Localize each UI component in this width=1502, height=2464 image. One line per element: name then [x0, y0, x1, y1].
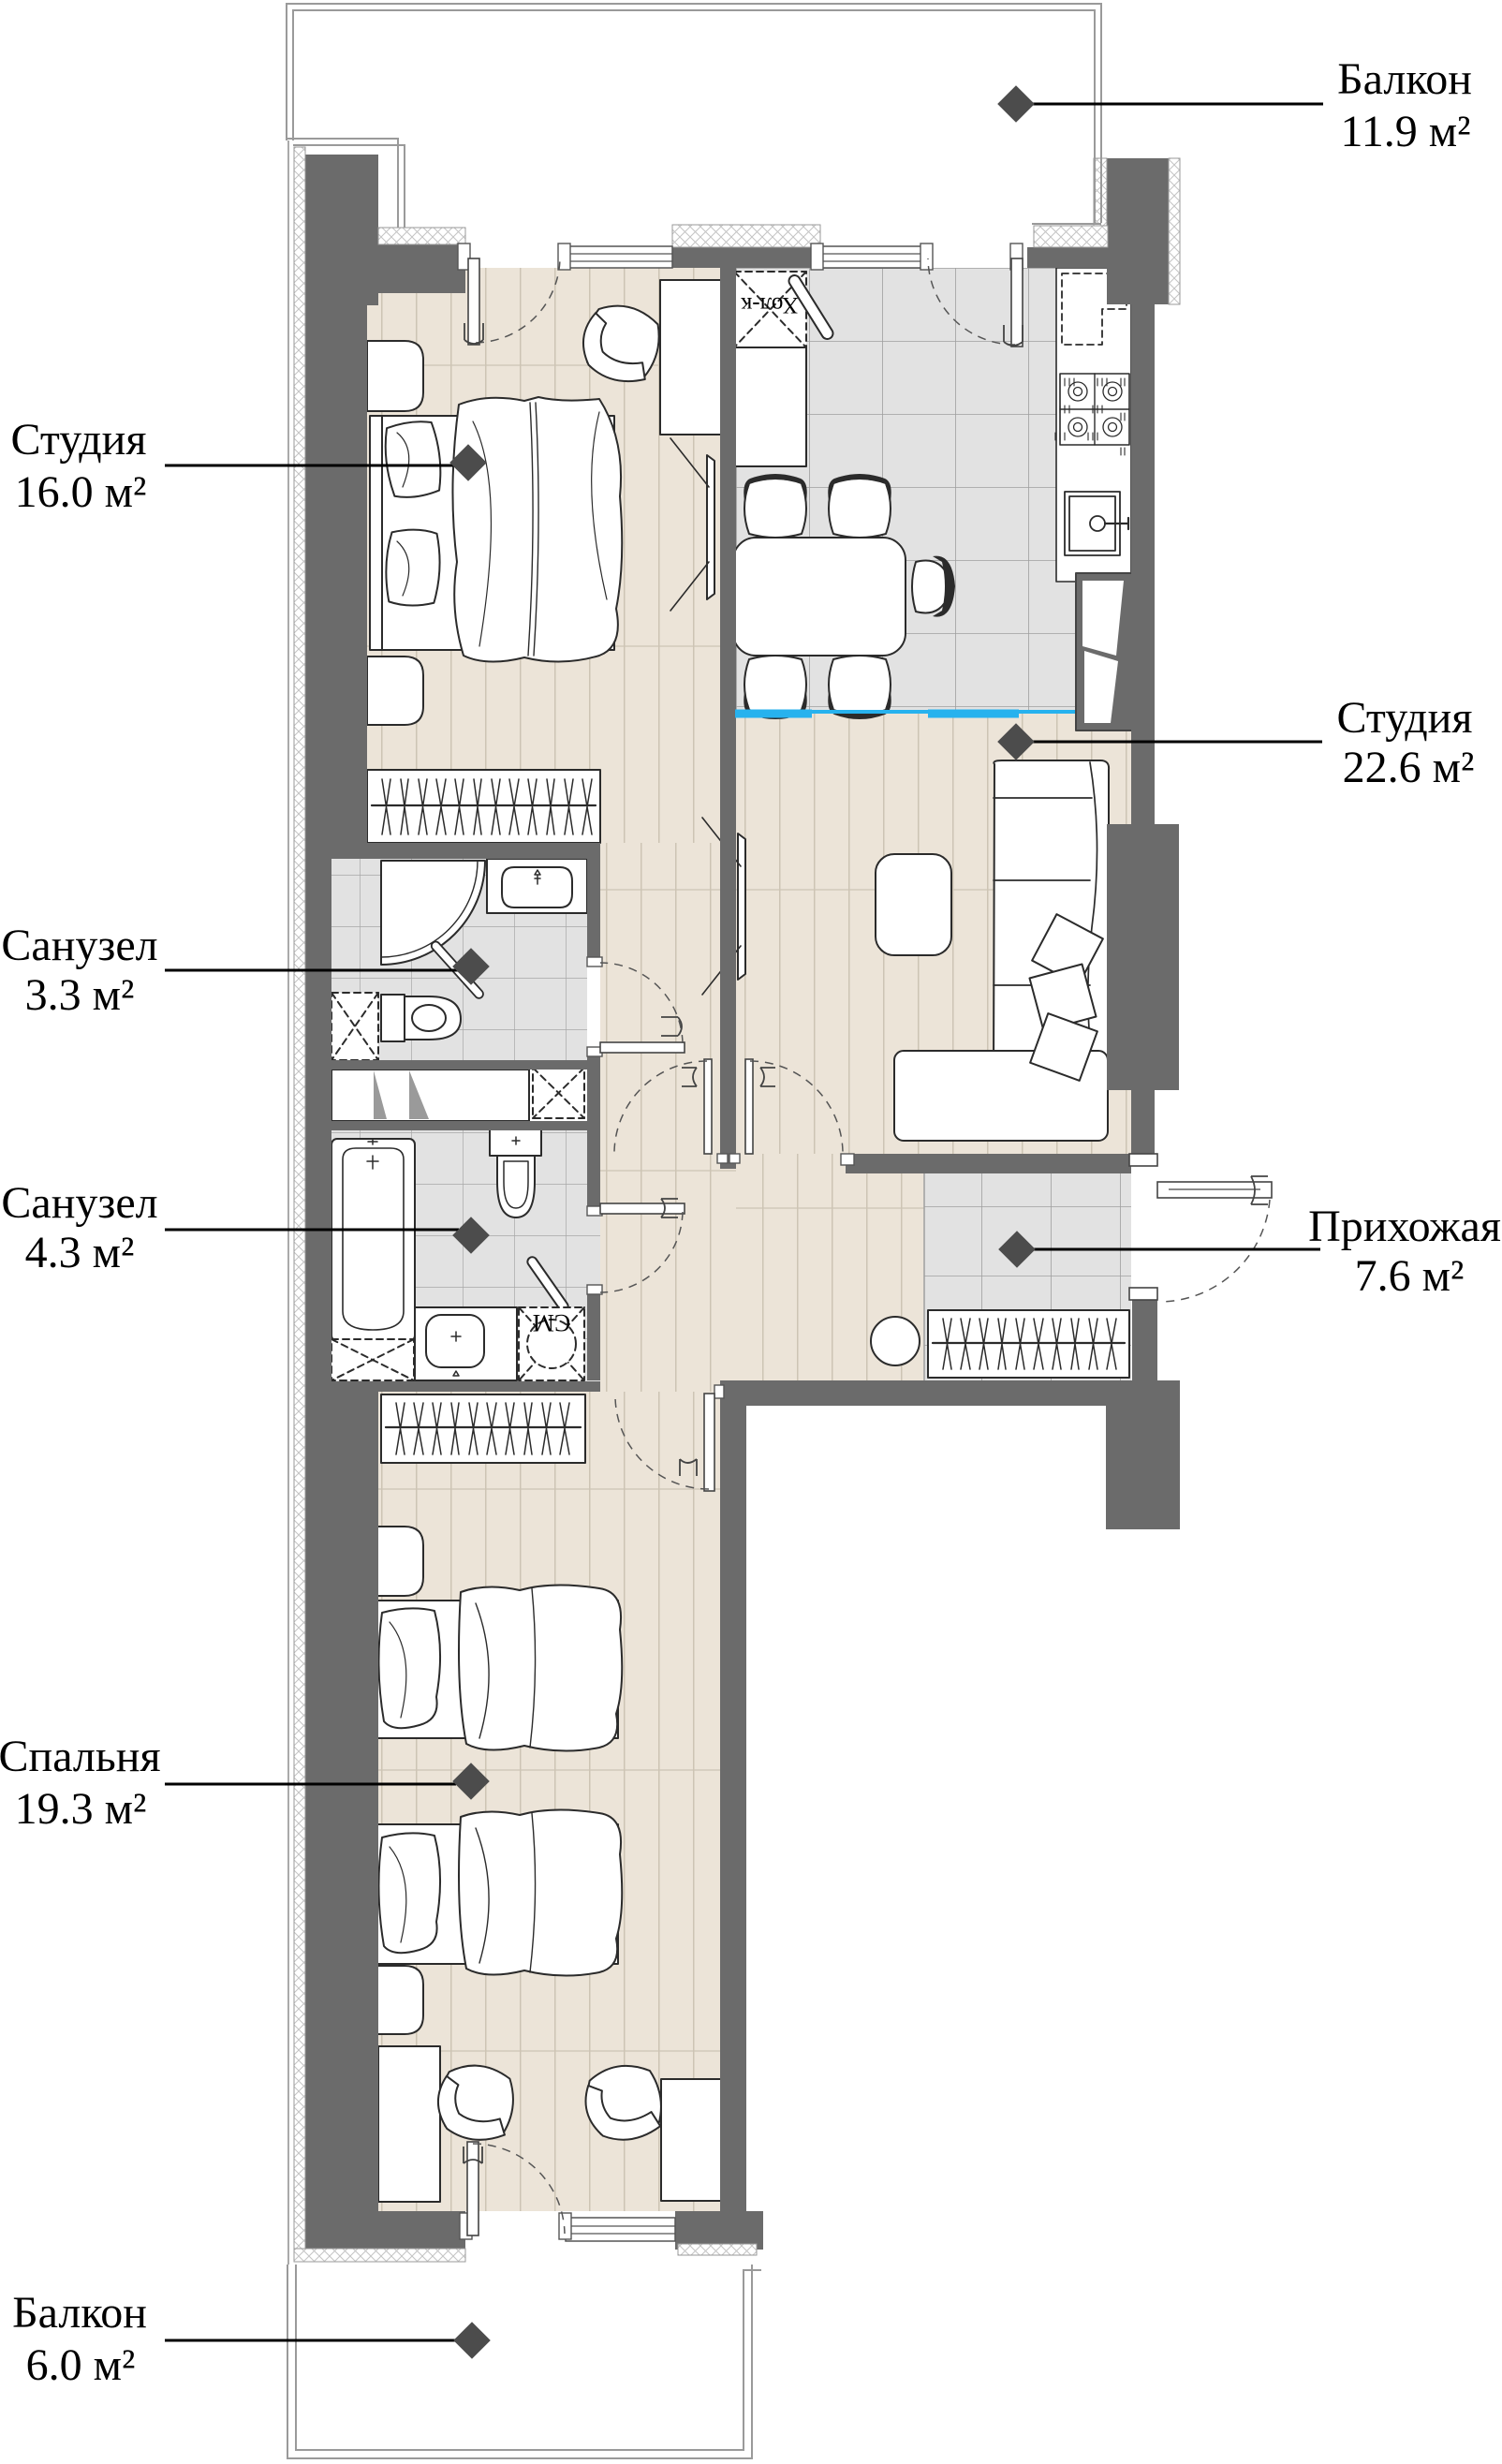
- svg-text:Спальня: Спальня: [0, 1732, 161, 1781]
- svg-text:7.6 м²: 7.6 м²: [1355, 1251, 1465, 1301]
- svg-text:11.9 м²: 11.9 м²: [1341, 107, 1471, 156]
- svg-text:Прихожая: Прихожая: [1308, 1202, 1501, 1251]
- svg-text:Студия: Студия: [1337, 693, 1473, 743]
- svg-text:Санузел: Санузел: [1, 921, 157, 970]
- svg-text:22.6 м²: 22.6 м²: [1343, 743, 1475, 792]
- svg-text:СМ: СМ: [533, 1309, 570, 1336]
- svg-text:3.3 м²: 3.3 м²: [25, 970, 135, 1020]
- svg-text:16.0 м²: 16.0 м²: [15, 467, 147, 517]
- svg-text:Санузел: Санузел: [1, 1178, 157, 1228]
- svg-text:6.0 м²: 6.0 м²: [26, 2340, 136, 2390]
- svg-text:Балкон: Балкон: [1337, 54, 1472, 104]
- svg-text:Балкон: Балкон: [12, 2288, 147, 2338]
- svg-text:Хол-к: Хол-к: [740, 292, 798, 317]
- svg-text:Студия: Студия: [11, 415, 147, 465]
- svg-text:4.3 м²: 4.3 м²: [25, 1228, 135, 1277]
- svg-text:19.3 м²: 19.3 м²: [15, 1784, 147, 1834]
